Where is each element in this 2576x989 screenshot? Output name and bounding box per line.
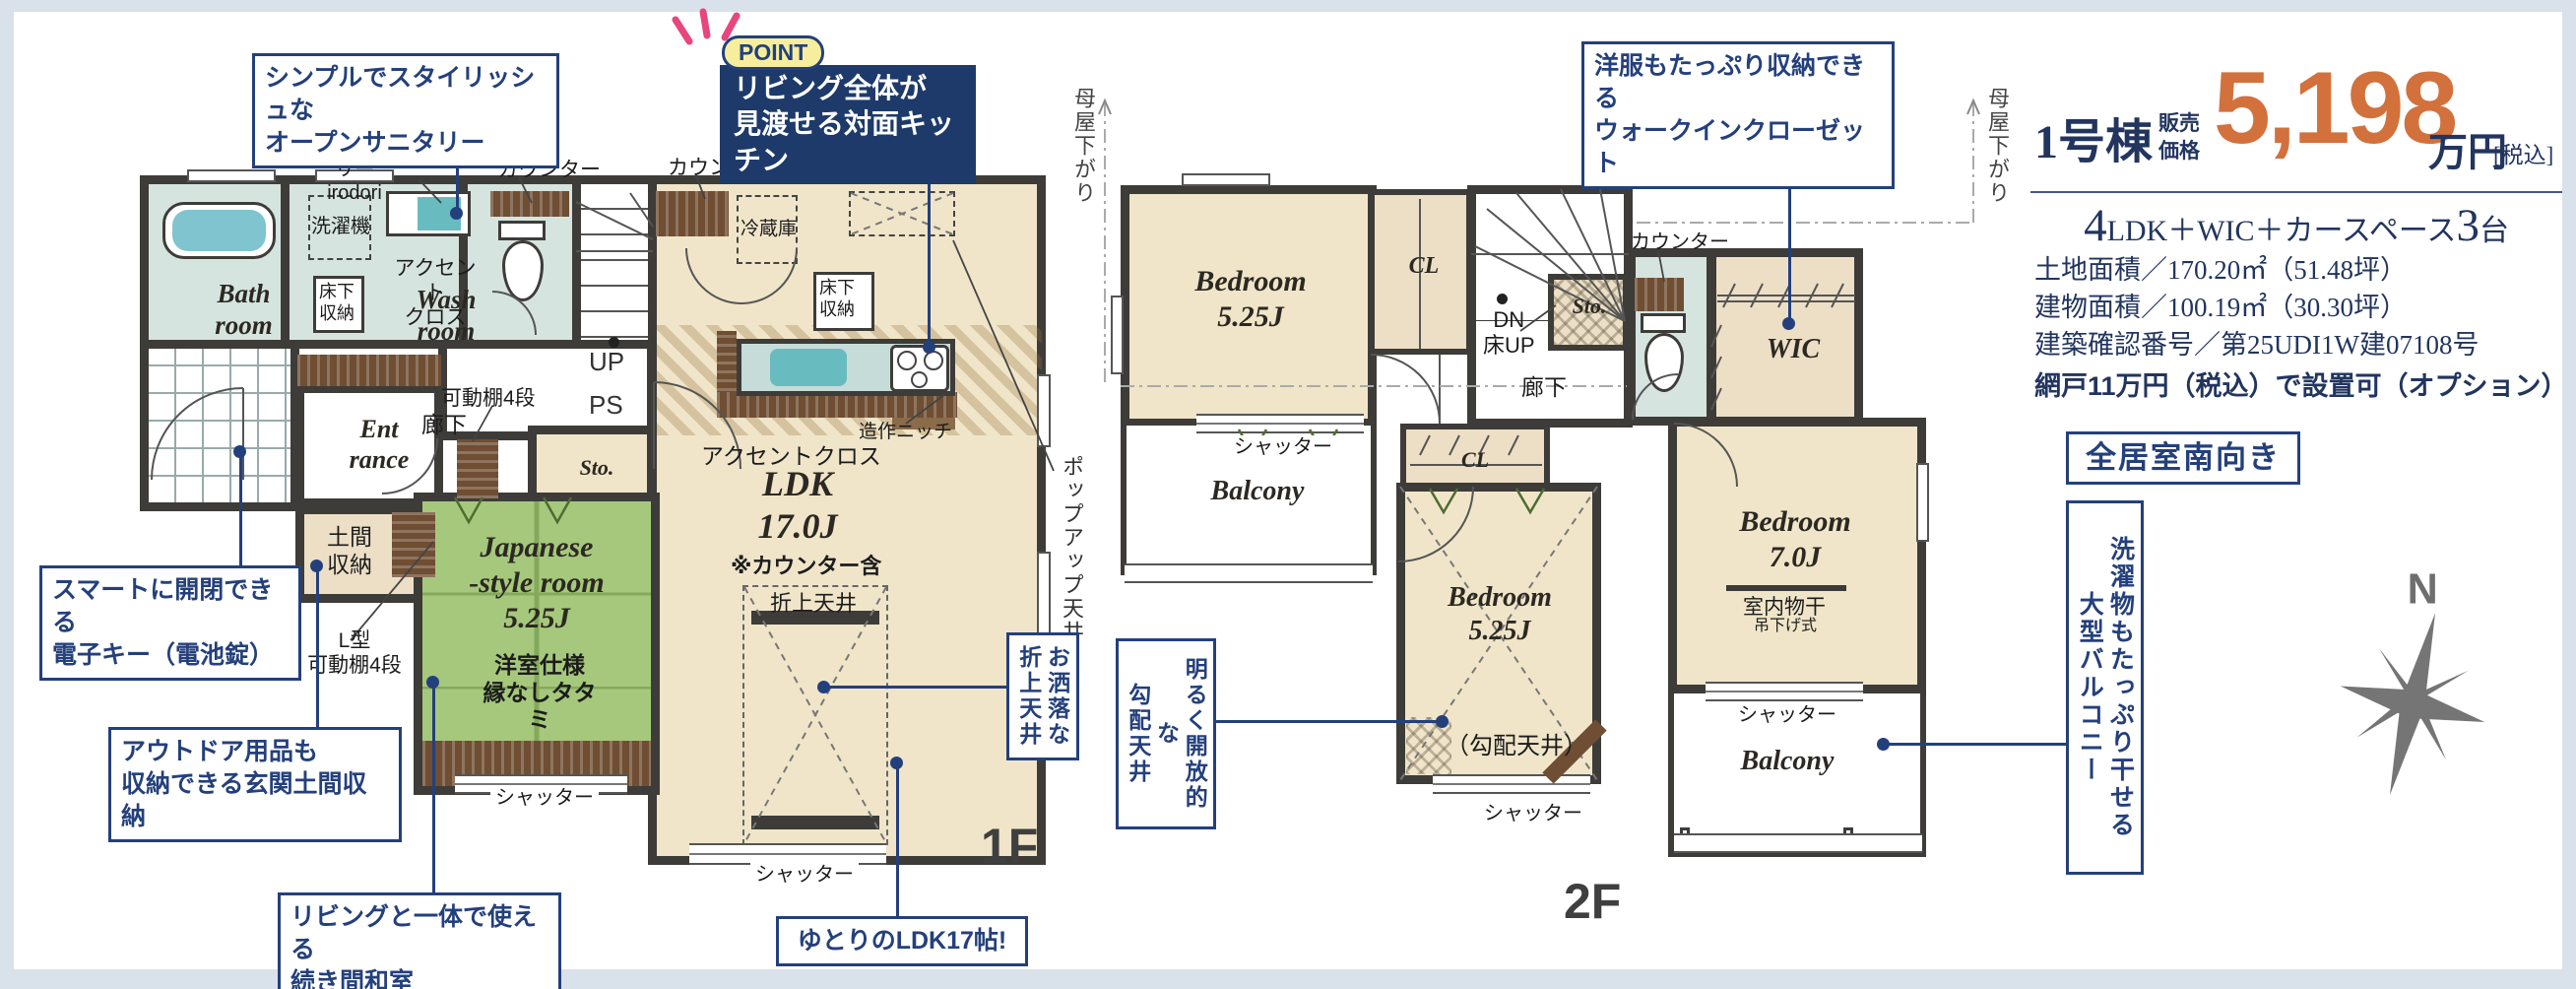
bedroom2-name: Bedroom 7.0J — [1711, 504, 1879, 575]
shutter-label-japanese: シャッター — [490, 786, 599, 810]
price-tax: [税込] — [2493, 136, 2553, 169]
approval-number: 建築確認番号／第25UDI1W建07108号 — [2034, 323, 2479, 362]
note-doma: アウトドア用品も 収納できる玄関土間収納 — [108, 727, 402, 842]
cl1-label: CL — [1396, 252, 1451, 281]
oriage-label: 折上天井 — [770, 591, 857, 617]
leader-dot-wic — [1782, 317, 1795, 330]
building-area: 建物面積／100.19㎡（30.30坪） — [2034, 286, 2407, 324]
shelf4-label: 可動棚4段 — [441, 386, 536, 411]
toilet-counter-2f — [1635, 278, 1684, 311]
shutter-ldk — [689, 843, 886, 865]
storage-name-1f: Sto. — [567, 455, 626, 481]
leader-dot-key — [233, 445, 246, 458]
balcony1-rail — [1125, 563, 1373, 583]
ldk-name: LDK 17.0J — [724, 463, 871, 548]
amido-option-note: 網戸11万円（税込）で設置可（オプション） — [2034, 364, 2568, 403]
note-ldk17: ゆとりのLDK17帖! — [776, 916, 1028, 966]
shutter-label-bedroom3: シャッター — [1479, 802, 1587, 825]
moya-label-right: 母屋下がり — [1981, 87, 2013, 274]
leader-dot-point — [923, 341, 935, 354]
window-bedroom1-left — [1111, 296, 1124, 374]
monohoshi-bar — [1726, 585, 1846, 591]
note-smart-key: スマートに開閉できる 電子キー（電池錠） — [39, 565, 301, 681]
bathtub-water — [172, 210, 266, 251]
spec-tail: 台 — [2479, 215, 2509, 247]
stove-burner-2 — [924, 351, 943, 370]
hall-label-1f: 廊下 — [421, 412, 467, 439]
spec-car-count: 3 — [2456, 200, 2479, 251]
ps-label: PS — [589, 390, 623, 421]
floor1-name: 1F — [981, 818, 1038, 875]
shutter-label-ldk: シャッター — [750, 863, 859, 887]
toilet-counter-1f — [490, 191, 569, 217]
window-ldk-right1 — [1037, 374, 1051, 447]
washer-label: 洗濯機 — [311, 215, 370, 238]
hall-shelf — [457, 439, 498, 498]
note-oriage: お洒落な 折上天井 — [1006, 632, 1079, 760]
up-label: UP — [589, 347, 624, 377]
note-point-kitchen: リビング全体が 見渡せる対面キッチン — [720, 65, 976, 184]
bedroom1-name: Bedroom 5.25J — [1162, 264, 1339, 335]
toilet-tank-1f — [498, 221, 546, 240]
price-value: 5,198 — [2214, 57, 2455, 160]
storage-name-2f: Sto. — [1560, 294, 1619, 319]
cl2-label: CL — [1448, 447, 1503, 473]
kitchen-counter-top — [656, 191, 729, 236]
bedroom3-name: Bedroom 5.25J — [1426, 581, 1574, 647]
shutter-label-bedroom2: シャッター — [1733, 703, 1841, 727]
hall-label-2f: 廊下 — [1521, 374, 1567, 402]
leader-dot-oriage — [817, 681, 830, 693]
stove-burner-3 — [911, 371, 928, 388]
unit-number: 1号棟 — [2034, 102, 2153, 171]
fridge-label: 冷蔵庫 — [741, 219, 797, 241]
price-label-1: 販売 — [2158, 110, 2200, 138]
note-washitsu: リビングと一体で使える 続き間和室 — [278, 892, 561, 989]
note-open-sanitary: シンプルでスタイリッシュな オープンサニタリー — [252, 53, 559, 168]
balcony1-name: Balcony — [1203, 475, 1312, 508]
stove-burner-1 — [897, 351, 917, 370]
entrance-step — [297, 355, 441, 386]
spec-mid: LDK＋WIC＋カースペース — [2107, 215, 2457, 247]
floor2-name: 2F — [1564, 873, 1621, 930]
toilet-tank-2f — [1641, 313, 1686, 333]
spec-line: 4LDK＋WIC＋カースペース3台 — [2030, 199, 2562, 252]
kitchen-sink — [770, 349, 847, 386]
japanese-room-sub: 洋室仕様 縁なしタタミ — [481, 652, 599, 734]
point-badge: POINT — [722, 35, 824, 70]
leader-dot-kobai — [1436, 715, 1449, 728]
kobai-paren-label: （勾配天井） — [1446, 733, 1587, 761]
leader-dot-washitsu — [426, 676, 439, 689]
window-bedroom2-right — [1916, 463, 1929, 542]
leader-dot-balcony — [1877, 738, 1890, 751]
land-area: 土地面積／170.20㎡（51.48坪） — [2034, 248, 2407, 287]
window-bedroom1-top — [1182, 173, 1270, 186]
leader-balcony — [1889, 743, 2066, 746]
leader-doma — [316, 569, 319, 727]
compass-north-letter: N — [2408, 571, 2438, 613]
room-porch — [140, 340, 299, 511]
entrance-name: Ent rance — [325, 414, 433, 475]
oriage-bar-bottom — [751, 816, 879, 829]
lshelf-label: L型 可動棚4段 — [295, 628, 414, 678]
stairs-dot-2f — [1497, 294, 1508, 304]
bathroom-name: Bath room — [192, 278, 295, 342]
niche-label: 造作ニッチ — [859, 422, 952, 444]
balcony2-name: Balcony — [1728, 745, 1846, 778]
leader-dot-sanitary — [450, 207, 463, 220]
leader-washitsu — [432, 686, 435, 892]
note-balcony: 洗濯物もたっぷり干せる 大型バルコニー — [2066, 500, 2144, 875]
leader-kobai — [1185, 720, 1443, 723]
south-facing-badge: 全居室南向き — [2066, 431, 2300, 485]
underfloor-label-kitchen: 床下 収納 — [819, 278, 855, 320]
note-wic: 洋服もたっぷり収納できる ウォークインクローゼット — [1581, 41, 1895, 189]
price-label-2: 価格 — [2158, 138, 2200, 165]
counter-label-toilet-2f: カウンター — [1631, 231, 1729, 254]
shutter-label-bedroom1: シャッター — [1229, 435, 1337, 459]
shutter-bedroom3 — [1433, 774, 1590, 794]
note-kobai: 明るく開放的な 勾配天井 — [1116, 638, 1216, 829]
tsurisage-label: 吊下げ式 — [1754, 617, 1817, 635]
underfloor-label-wash: 床下 収納 — [319, 282, 354, 324]
leader-ldk17 — [896, 766, 899, 916]
shutter-bedroom2 — [1706, 682, 1863, 701]
window-ldk-right2 — [1037, 552, 1051, 640]
dn-label: DN 床UP — [1483, 307, 1535, 360]
washroom-name: Wash room — [392, 284, 500, 348]
counter-included-note: ※カウンター含 — [731, 554, 881, 579]
window-bath — [187, 169, 276, 182]
price-divider — [2030, 191, 2562, 193]
leader-key — [239, 455, 242, 565]
leader-dot-doma — [310, 560, 323, 572]
moya-label-left: 母屋下がり — [1067, 87, 1099, 274]
compass-rose: N — [2324, 571, 2501, 798]
popup-window-box — [849, 191, 955, 236]
shutter-bedroom1 — [1196, 414, 1364, 433]
doma-label: 土間 収納 — [327, 524, 372, 578]
balcony2-rail — [1674, 833, 1922, 853]
popup-ceiling-label: ポップアップ天井 — [1056, 455, 1087, 662]
wic-name: WIC — [1759, 333, 1828, 366]
spec-ldk-count: 4 — [2084, 200, 2107, 251]
flyer-canvas: オープンサニタリー irodori カウンター カウンター 洗濯機 床下 収納 … — [0, 0, 2576, 989]
leader-oriage — [829, 686, 1006, 689]
japanese-room-name: Japanese -style room 5.25J — [423, 530, 650, 636]
stairs-dot-1f — [609, 337, 619, 348]
leader-dot-ldk17 — [890, 757, 903, 769]
